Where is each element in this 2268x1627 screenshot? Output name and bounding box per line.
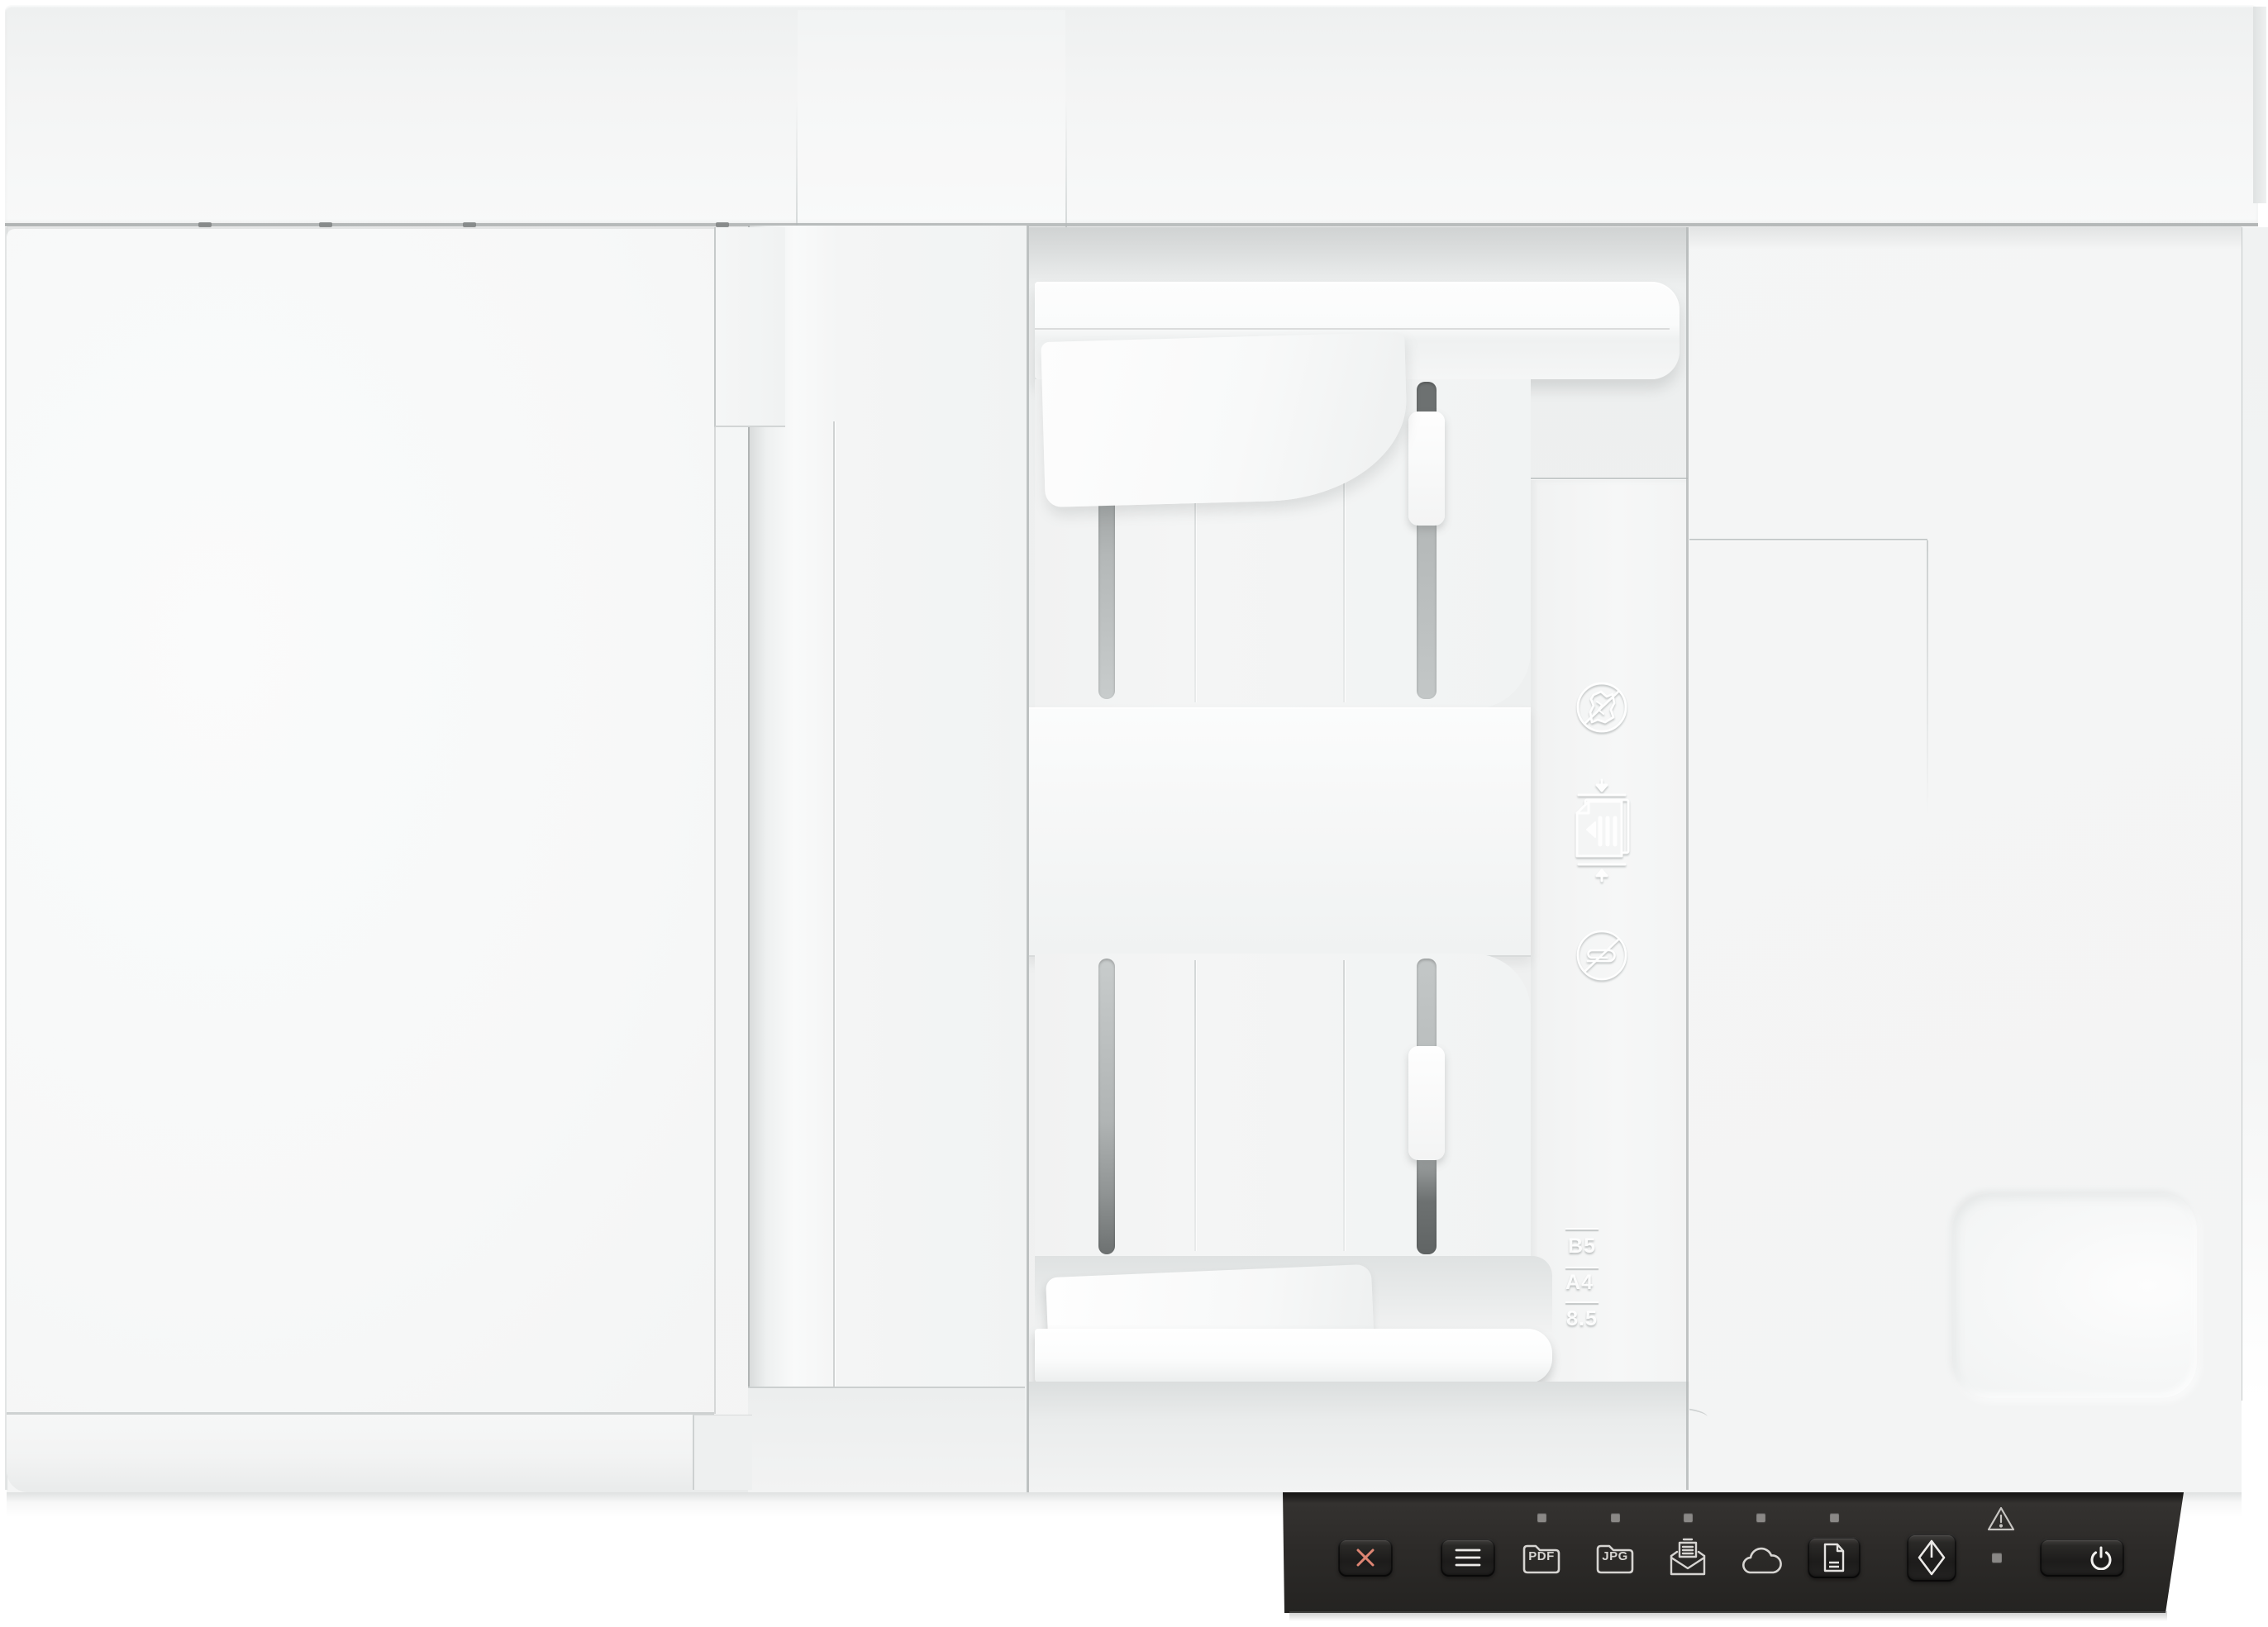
menu-button[interactable] <box>1441 1539 1495 1577</box>
power-icon <box>2089 1545 2113 1570</box>
scan-to-document-button[interactable] <box>1808 1537 1861 1578</box>
paper-size-tick <box>1565 1228 1599 1230</box>
warning-indicator <box>1986 1506 2016 1532</box>
lid-hinge-top <box>714 227 785 427</box>
start-scan-button[interactable] <box>1907 1534 1956 1582</box>
start-scan-diamond-icon <box>1917 1539 1946 1577</box>
adf-icon-strip <box>1531 479 1688 1492</box>
paper-size-mark-a4: A4 <box>1555 1271 1604 1295</box>
body-right-side-face <box>2242 227 2268 1401</box>
no-wrinkled-paper-icon <box>1575 680 1629 735</box>
lid-front-face <box>7 1415 748 1492</box>
document-led <box>1830 1513 1839 1522</box>
warning-triangle-icon <box>1986 1506 2016 1532</box>
body-recessed-pad <box>1952 1193 2197 1398</box>
cloud-icon <box>1739 1547 1782 1575</box>
back-band-center-segment <box>798 10 1065 229</box>
lid-hinge-bottom <box>693 1415 752 1490</box>
body-panel-groove-vertical <box>1927 540 1928 813</box>
lid-hinge-strip <box>748 226 1029 1492</box>
power-button[interactable] <box>2040 1539 2124 1577</box>
back-band-side-face <box>2253 7 2266 203</box>
pdf-label: PDF <box>1520 1549 1563 1563</box>
hinge-strip-groove <box>833 421 835 1388</box>
flatbed-lid <box>7 229 716 1414</box>
jpg-led <box>1611 1513 1620 1522</box>
paper-guide-handle-upper <box>1408 412 1445 526</box>
scan-to-jpg-indicator: JPG <box>1594 1540 1637 1575</box>
scan-to-pdf-indicator: PDF <box>1520 1540 1563 1575</box>
no-paperclips-icon <box>1575 928 1629 982</box>
scanner-back-band <box>5 5 2258 226</box>
hinge-strip-front-face <box>748 1388 1025 1492</box>
document-sheet-icon <box>1822 1542 1846 1573</box>
scan-to-email-indicator <box>1666 1538 1709 1577</box>
paper-size-mark-b5: B5 <box>1557 1235 1607 1258</box>
paper-guide-handle-lower <box>1408 1046 1445 1160</box>
adf-recess-shadow <box>1025 227 1689 285</box>
cloud-led <box>1756 1513 1765 1522</box>
scan-to-cloud-indicator <box>1739 1547 1782 1575</box>
body-panel-groove-horizontal <box>1689 539 1927 540</box>
scanner-product-photo: B5 A4 8.5 <box>0 0 2268 1627</box>
email-led <box>1684 1513 1693 1522</box>
control-panel: PDF JPG <box>1283 1492 2184 1613</box>
load-documents-between-guides-icon <box>1557 778 1646 887</box>
x-cancel-icon <box>1355 1547 1376 1568</box>
paper-guide-slot-left-lower <box>1098 959 1115 1254</box>
paper-size-mark-85: 8.5 <box>1557 1307 1607 1331</box>
cancel-button[interactable] <box>1338 1539 1393 1577</box>
tray-joint-line <box>1343 960 1345 1251</box>
adf-output-bar-edge <box>1035 328 1670 330</box>
tray-joint-line <box>1194 960 1196 1251</box>
adf-tray-crossbar <box>1025 707 1531 957</box>
paper-size-tick <box>1565 1301 1599 1303</box>
email-envelope-icon <box>1666 1538 1709 1577</box>
tray-body-separation-groove <box>1686 227 1689 1490</box>
jpg-label: JPG <box>1594 1549 1637 1563</box>
back-band-seam-left <box>796 101 798 231</box>
paper-size-tick <box>1565 1267 1599 1268</box>
adf-front-apron <box>1025 1382 1689 1492</box>
adf-front-bar <box>1035 1329 1552 1383</box>
pdf-led <box>1537 1513 1546 1522</box>
status-led <box>1992 1553 2002 1563</box>
icon-strip-groove <box>1531 478 1688 479</box>
panel-drop-shadow <box>1289 1611 2167 1621</box>
back-band-seam-right <box>1065 101 1067 231</box>
menu-lines-icon <box>1455 1548 1481 1568</box>
